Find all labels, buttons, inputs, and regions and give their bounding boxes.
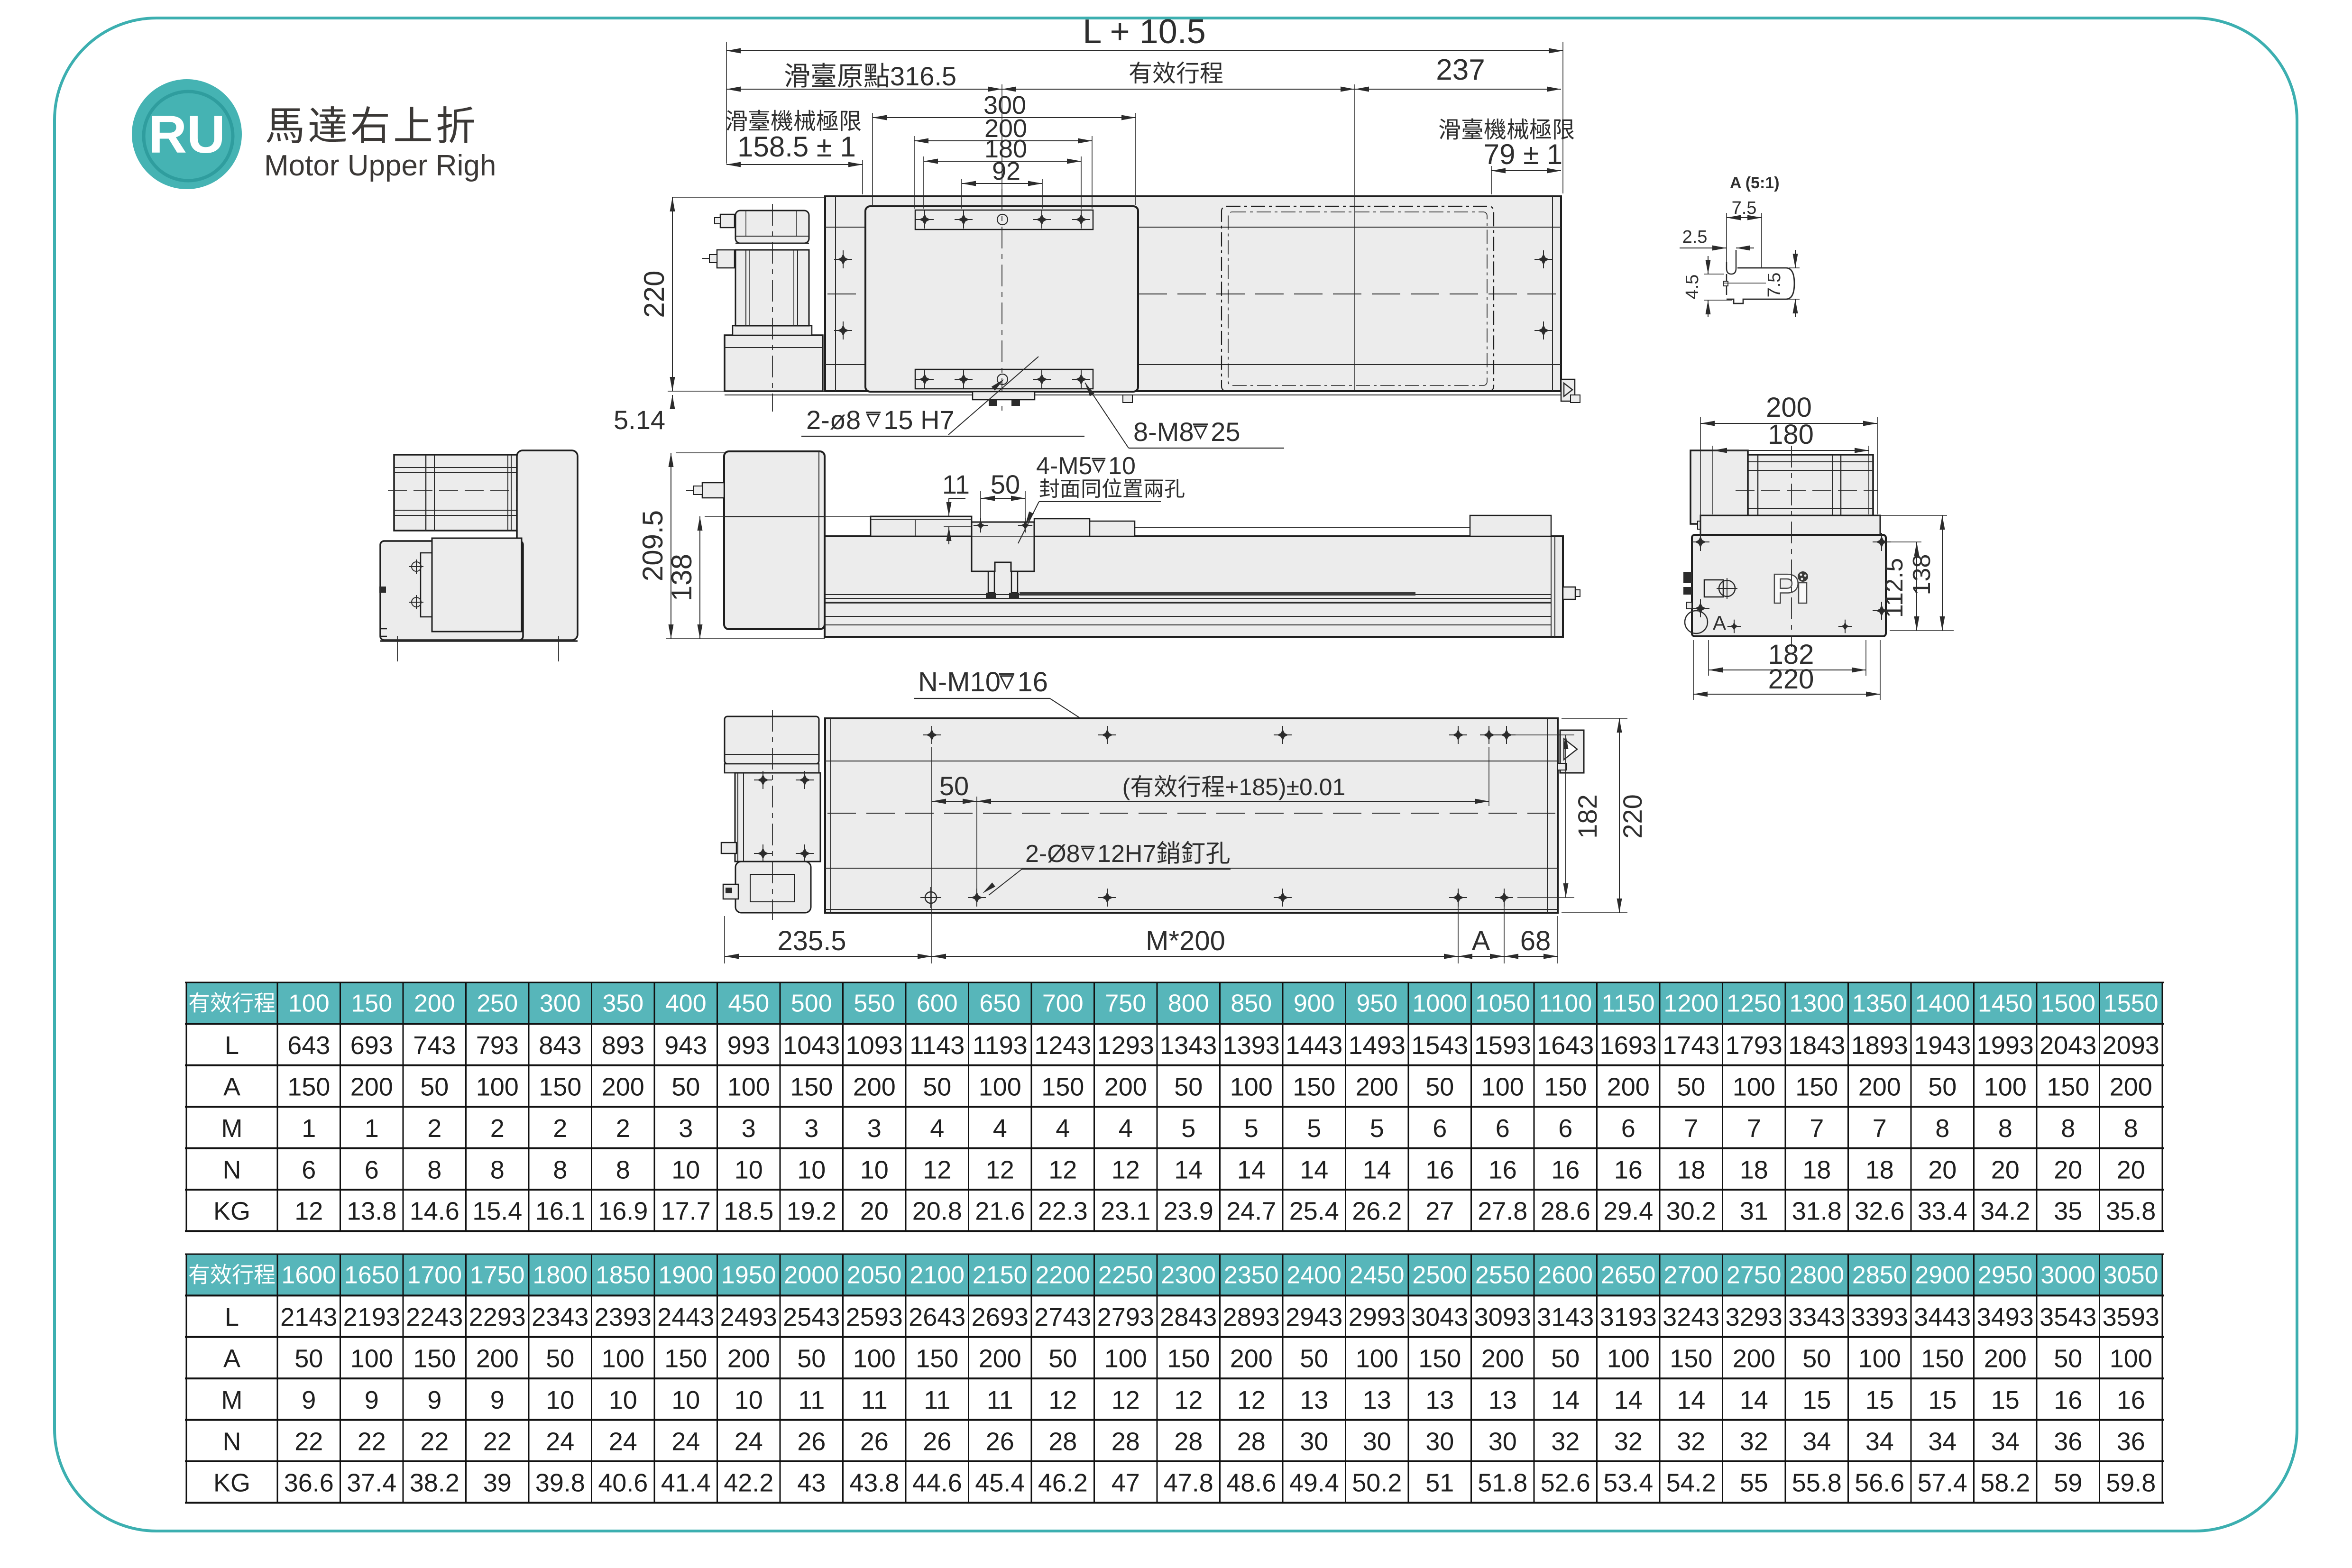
svg-text:34.2: 34.2 [1980,1197,2030,1226]
svg-text:9: 9 [427,1386,441,1414]
svg-text:(有效行程+185)±0.01: (有效行程+185)±0.01 [1122,774,1346,800]
svg-text:100: 100 [1607,1345,1650,1373]
svg-text:300: 300 [540,990,581,1018]
svg-text:1850: 1850 [596,1262,651,1289]
svg-text:1443: 1443 [1286,1031,1342,1060]
svg-text:650: 650 [979,990,1020,1018]
svg-text:209.5: 209.5 [637,510,669,581]
svg-text:28: 28 [1174,1427,1203,1456]
svg-text:3: 3 [804,1114,818,1143]
svg-text:8: 8 [616,1155,630,1184]
svg-text:有效行程: 有效行程 [188,1263,276,1287]
svg-text:18.5: 18.5 [724,1197,773,1226]
svg-text:34: 34 [1928,1427,1957,1456]
svg-text:22: 22 [483,1427,512,1456]
svg-text:47.8: 47.8 [1164,1469,1213,1497]
svg-text:23.1: 23.1 [1101,1197,1150,1226]
svg-text:100: 100 [1984,1073,2027,1101]
svg-text:14: 14 [1677,1386,1705,1414]
svg-text:2543: 2543 [783,1303,840,1331]
svg-text:150: 150 [351,990,392,1018]
svg-text:31.8: 31.8 [1792,1197,1842,1226]
svg-text:2300: 2300 [1161,1262,1216,1289]
svg-text:1993: 1993 [1977,1031,2034,1060]
svg-text:150: 150 [1041,1073,1084,1101]
svg-text:55.8: 55.8 [1792,1469,1842,1497]
svg-text:10: 10 [671,1155,700,1184]
svg-text:46.2: 46.2 [1038,1469,1088,1497]
svg-text:220: 220 [1768,664,1814,695]
svg-text:有效行程: 有效行程 [1129,60,1223,87]
svg-text:2850: 2850 [1852,1262,1907,1289]
svg-text:19.2: 19.2 [787,1197,836,1226]
svg-text:32: 32 [1551,1427,1580,1456]
svg-text:N: N [223,1155,241,1184]
svg-text:3093: 3093 [1474,1303,1531,1331]
svg-text:1143: 1143 [910,1031,965,1060]
svg-text:2493: 2493 [720,1303,777,1331]
svg-text:14: 14 [1614,1386,1643,1414]
svg-text:200: 200 [1984,1345,2027,1373]
svg-text:17.7: 17.7 [661,1197,711,1226]
svg-text:200: 200 [414,990,455,1018]
svg-text:7: 7 [1684,1114,1698,1143]
svg-text:1693: 1693 [1600,1031,1657,1060]
svg-text:10: 10 [735,1155,763,1184]
svg-text:N-M10: N-M10 [918,667,1001,697]
svg-text:843: 843 [539,1031,581,1060]
svg-text:1493: 1493 [1349,1031,1406,1060]
svg-text:150: 150 [1167,1345,1210,1373]
svg-text:2900: 2900 [1915,1262,1970,1289]
svg-text:100: 100 [727,1073,770,1101]
svg-text:2700: 2700 [1663,1262,1718,1289]
svg-text:450: 450 [728,990,769,1018]
svg-text:41.4: 41.4 [661,1469,711,1497]
svg-text:600: 600 [917,990,958,1018]
svg-text:50: 50 [1174,1073,1203,1101]
svg-text:1800: 1800 [533,1262,588,1289]
svg-text:48.6: 48.6 [1226,1469,1276,1497]
svg-text:993: 993 [727,1031,770,1060]
svg-text:50: 50 [923,1073,951,1101]
svg-text:27.8: 27.8 [1478,1197,1527,1226]
svg-text:200: 200 [1230,1345,1273,1373]
svg-text:2550: 2550 [1475,1262,1530,1289]
svg-text:1500: 1500 [2040,990,2095,1018]
svg-text:34: 34 [1991,1427,2020,1456]
svg-text:51: 51 [1425,1469,1454,1497]
svg-text:1393: 1393 [1223,1031,1280,1060]
svg-text:150: 150 [1670,1345,1712,1373]
svg-text:5: 5 [1307,1114,1321,1143]
svg-text:18: 18 [1740,1155,1768,1184]
svg-text:150: 150 [1795,1073,1838,1101]
svg-text:57.4: 57.4 [1918,1469,1967,1497]
svg-text:1550: 1550 [2104,990,2159,1018]
svg-text:1900: 1900 [658,1262,713,1289]
svg-text:12: 12 [1174,1386,1203,1414]
svg-text:4-M5: 4-M5 [1036,452,1092,480]
svg-text:150: 150 [413,1345,456,1373]
svg-text:6: 6 [1496,1114,1510,1143]
svg-text:4.5: 4.5 [1682,275,1702,300]
svg-text:13: 13 [1300,1386,1328,1414]
svg-text:6: 6 [1621,1114,1635,1143]
svg-text:RU: RU [148,105,225,164]
svg-text:2093: 2093 [2103,1031,2159,1060]
svg-text:50: 50 [420,1073,449,1101]
svg-text:8: 8 [553,1155,567,1184]
svg-text:56.6: 56.6 [1855,1469,1904,1497]
svg-text:9: 9 [302,1386,316,1414]
svg-text:1643: 1643 [1537,1031,1594,1060]
svg-text:3: 3 [742,1114,756,1143]
svg-text:22: 22 [294,1427,323,1456]
svg-text:182: 182 [1572,794,1602,838]
svg-text:12: 12 [1048,1155,1077,1184]
svg-text:1950: 1950 [721,1262,776,1289]
svg-text:30: 30 [1488,1427,1517,1456]
svg-text:16: 16 [1018,667,1048,697]
svg-text:5: 5 [1244,1114,1259,1143]
svg-text:11: 11 [987,1386,1013,1414]
svg-text:550: 550 [854,990,895,1018]
svg-text:2800: 2800 [1789,1262,1844,1289]
svg-text:2793: 2793 [1097,1303,1154,1331]
svg-text:2-ø8: 2-ø8 [806,405,861,435]
svg-text:150: 150 [1293,1073,1335,1101]
svg-text:M*200: M*200 [1146,926,1225,956]
svg-text:33.4: 33.4 [1918,1197,1967,1226]
svg-text:2100: 2100 [910,1262,965,1289]
svg-text:743: 743 [413,1031,456,1060]
svg-text:A: A [223,1345,240,1373]
svg-text:16: 16 [1614,1155,1643,1184]
svg-text:6: 6 [1558,1114,1572,1143]
svg-text:N: N [223,1427,241,1456]
svg-text:38.2: 38.2 [410,1469,459,1497]
svg-text:3243: 3243 [1663,1303,1719,1331]
svg-text:55: 55 [1740,1469,1768,1497]
svg-text:150: 150 [1921,1345,1964,1373]
svg-text:893: 893 [602,1031,644,1060]
svg-text:50: 50 [1048,1345,1077,1373]
svg-text:50: 50 [1677,1073,1705,1101]
svg-text:693: 693 [350,1031,393,1060]
svg-text:50: 50 [1802,1345,1831,1373]
svg-text:34: 34 [1802,1427,1831,1456]
svg-text:11: 11 [942,469,970,499]
svg-text:8-M8: 8-M8 [1133,417,1194,447]
svg-text:16: 16 [1551,1155,1580,1184]
svg-text:138: 138 [666,554,698,601]
svg-text:200: 200 [727,1345,770,1373]
svg-text:13.8: 13.8 [347,1197,396,1226]
svg-text:92: 92 [992,157,1020,185]
svg-text:23.9: 23.9 [1164,1197,1213,1226]
svg-text:200: 200 [2110,1073,2152,1101]
svg-text:200: 200 [1356,1073,1398,1101]
svg-text:18: 18 [1677,1155,1705,1184]
svg-text:8: 8 [490,1155,505,1184]
svg-text:馬達右上折: 馬達右上折 [265,104,478,148]
svg-text:1650: 1650 [344,1262,399,1289]
svg-text:50: 50 [294,1345,323,1373]
svg-text:2-Ø8: 2-Ø8 [1025,840,1080,868]
svg-text:750: 750 [1105,990,1146,1018]
svg-text:2743: 2743 [1034,1303,1091,1331]
svg-text:50: 50 [671,1073,700,1101]
svg-text:14: 14 [1740,1386,1768,1414]
svg-text:2: 2 [553,1114,567,1143]
svg-text:1700: 1700 [407,1262,462,1289]
svg-text:1000: 1000 [1412,990,1467,1018]
svg-text:100: 100 [602,1345,644,1373]
svg-text:3543: 3543 [2040,1303,2096,1331]
svg-text:7.5: 7.5 [1732,198,1757,218]
svg-text:100: 100 [1104,1345,1147,1373]
svg-text:5.14: 5.14 [614,405,665,435]
svg-text:50: 50 [1551,1345,1580,1373]
svg-text:2443: 2443 [657,1303,714,1331]
svg-text:1093: 1093 [846,1031,903,1060]
svg-text:A (5:1): A (5:1) [1730,174,1780,192]
svg-text:112.5: 112.5 [1881,558,1908,618]
svg-text:43: 43 [797,1469,826,1497]
svg-text:100: 100 [288,990,330,1018]
svg-text:150: 150 [916,1345,958,1373]
svg-text:2943: 2943 [1286,1303,1342,1331]
svg-text:31: 31 [1740,1197,1768,1226]
svg-text:22: 22 [420,1427,449,1456]
svg-text:15: 15 [1802,1386,1831,1414]
svg-text:12H7銷釘孔: 12H7銷釘孔 [1097,840,1230,868]
svg-text:15: 15 [1928,1386,1957,1414]
svg-text:10: 10 [1108,452,1136,480]
svg-text:3593: 3593 [2103,1303,2159,1331]
svg-text:59: 59 [2054,1469,2082,1497]
svg-text:7: 7 [1873,1114,1887,1143]
svg-text:40.6: 40.6 [598,1469,648,1497]
svg-text:20: 20 [2117,1155,2145,1184]
svg-text:有效行程: 有效行程 [188,991,276,1016]
svg-text:20.8: 20.8 [912,1197,962,1226]
svg-text:100: 100 [1356,1345,1398,1373]
svg-text:58.2: 58.2 [1980,1469,2030,1497]
svg-text:2400: 2400 [1286,1262,1341,1289]
svg-text:3193: 3193 [1600,1303,1657,1331]
svg-text:793: 793 [476,1031,519,1060]
svg-text:24: 24 [671,1427,700,1456]
svg-text:100: 100 [2110,1345,2152,1373]
svg-text:25.4: 25.4 [1289,1197,1339,1226]
svg-text:26: 26 [923,1427,951,1456]
svg-text:21.6: 21.6 [975,1197,1025,1226]
svg-text:350: 350 [602,990,643,1018]
svg-text:36.6: 36.6 [284,1469,334,1497]
svg-text:200: 200 [602,1073,644,1101]
svg-text:30: 30 [1300,1427,1328,1456]
svg-text:235.5: 235.5 [777,926,846,956]
svg-text:26: 26 [986,1427,1014,1456]
svg-text:A: A [1472,926,1490,956]
svg-text:2: 2 [427,1114,441,1143]
svg-text:26: 26 [860,1427,889,1456]
svg-text:29.4: 29.4 [1603,1197,1653,1226]
svg-text:6: 6 [1433,1114,1447,1143]
svg-text:1293: 1293 [1097,1031,1154,1060]
svg-text:100: 100 [476,1073,519,1101]
svg-text:28: 28 [1112,1427,1140,1456]
svg-text:50: 50 [1425,1073,1454,1101]
svg-text:138: 138 [1908,554,1936,596]
svg-text:52.6: 52.6 [1541,1469,1590,1497]
svg-text:2: 2 [616,1114,630,1143]
svg-text:11: 11 [924,1386,950,1414]
svg-text:1593: 1593 [1474,1031,1531,1060]
svg-text:滑臺原點316.5: 滑臺原點316.5 [784,61,956,91]
svg-text:12: 12 [1237,1386,1266,1414]
svg-text:150: 150 [1544,1073,1587,1101]
svg-text:2500: 2500 [1412,1262,1467,1289]
svg-text:50: 50 [939,771,969,801]
svg-text:8: 8 [2124,1114,2138,1143]
svg-text:11: 11 [798,1386,825,1414]
svg-text:1843: 1843 [1788,1031,1845,1060]
svg-text:250: 250 [477,990,518,1018]
svg-text:200: 200 [1607,1073,1650,1101]
svg-text:24.7: 24.7 [1226,1197,1276,1226]
svg-text:59.8: 59.8 [2106,1469,2156,1497]
svg-text:42.2: 42.2 [724,1469,773,1497]
svg-text:1: 1 [365,1114,379,1143]
svg-text:3: 3 [867,1114,882,1143]
svg-text:37.4: 37.4 [347,1469,396,1497]
svg-text:10: 10 [860,1155,889,1184]
svg-text:3143: 3143 [1537,1303,1594,1331]
svg-text:36: 36 [2054,1427,2082,1456]
svg-text:2.5: 2.5 [1682,227,1708,247]
svg-text:500: 500 [791,990,832,1018]
svg-text:39.8: 39.8 [535,1469,585,1497]
svg-text:2200: 2200 [1035,1262,1090,1289]
svg-text:8: 8 [427,1155,441,1184]
svg-text:4: 4 [930,1114,944,1143]
svg-text:2193: 2193 [343,1303,400,1331]
svg-text:50: 50 [2054,1345,2082,1373]
svg-text:14: 14 [1551,1386,1580,1414]
svg-text:L + 10.5: L + 10.5 [1083,13,1206,51]
svg-text:43.8: 43.8 [849,1469,899,1497]
svg-text:8: 8 [1935,1114,1949,1143]
svg-text:100: 100 [1858,1345,1901,1373]
svg-text:16: 16 [1425,1155,1454,1184]
svg-text:24: 24 [546,1427,574,1456]
svg-text:2693: 2693 [972,1303,1029,1331]
svg-text:10: 10 [609,1386,637,1414]
svg-text:28: 28 [1048,1427,1077,1456]
svg-text:3050: 3050 [2104,1262,2159,1289]
svg-text:8: 8 [1998,1114,2012,1143]
svg-text:13: 13 [1363,1386,1391,1414]
svg-text:14: 14 [1300,1155,1328,1184]
svg-text:7: 7 [1810,1114,1824,1143]
svg-text:26: 26 [797,1427,826,1456]
svg-text:A: A [223,1073,240,1101]
svg-text:2243: 2243 [406,1303,463,1331]
svg-text:1043: 1043 [783,1031,840,1060]
svg-text:50: 50 [1928,1073,1957,1101]
svg-text:220: 220 [638,270,670,318]
svg-text:A: A [1713,612,1726,634]
svg-text:30: 30 [1425,1427,1454,1456]
svg-text:Motor Upper Righ: Motor Upper Righ [264,149,496,182]
svg-text:9: 9 [365,1386,379,1414]
svg-text:27: 27 [1425,1197,1454,1226]
svg-text:800: 800 [1168,990,1209,1018]
svg-text:950: 950 [1356,990,1397,1018]
svg-text:158.5 ± 1: 158.5 ± 1 [737,131,856,163]
svg-text:32.6: 32.6 [1855,1197,1904,1226]
svg-text:26.2: 26.2 [1352,1197,1402,1226]
svg-text:14: 14 [1174,1155,1203,1184]
svg-text:1150: 1150 [1602,990,1655,1018]
svg-text:100: 100 [853,1345,896,1373]
svg-text:12: 12 [294,1197,323,1226]
svg-text:100: 100 [1733,1073,1775,1101]
svg-text:13: 13 [1488,1386,1517,1414]
svg-text:16: 16 [2054,1386,2082,1414]
svg-text:2893: 2893 [1223,1303,1280,1331]
svg-text:12: 12 [1112,1155,1140,1184]
svg-text:2450: 2450 [1350,1262,1405,1289]
svg-text:7.5: 7.5 [1764,273,1784,298]
svg-text:L: L [225,1303,239,1331]
svg-text:10: 10 [797,1155,826,1184]
svg-text:1600: 1600 [281,1262,336,1289]
svg-text:1893: 1893 [1851,1031,1908,1060]
svg-text:28: 28 [1237,1427,1266,1456]
svg-text:15.4: 15.4 [472,1197,522,1226]
svg-text:2250: 2250 [1098,1262,1153,1289]
svg-text:L: L [225,1031,239,1060]
svg-text:20: 20 [1991,1155,2020,1184]
svg-text:1300: 1300 [1789,990,1844,1018]
svg-text:2350: 2350 [1224,1262,1279,1289]
svg-text:1193: 1193 [973,1031,1028,1060]
svg-text:900: 900 [1294,990,1335,1018]
svg-text:49.4: 49.4 [1289,1469,1339,1497]
svg-text:200: 200 [1766,392,1812,423]
svg-text:200: 200 [1858,1073,1901,1101]
svg-text:16: 16 [1488,1155,1517,1184]
svg-text:100: 100 [350,1345,393,1373]
svg-text:5: 5 [1370,1114,1384,1143]
svg-text:7: 7 [1747,1114,1761,1143]
svg-text:1243: 1243 [1034,1031,1091,1060]
svg-text:KG: KG [213,1469,250,1497]
svg-text:35.8: 35.8 [2106,1197,2156,1226]
svg-text:50: 50 [991,469,1020,499]
svg-text:100: 100 [1481,1073,1524,1101]
svg-text:25: 25 [1211,417,1240,447]
svg-text:22: 22 [358,1427,386,1456]
svg-text:237: 237 [1436,54,1485,86]
svg-text:200: 200 [1733,1345,1775,1373]
svg-text:150: 150 [287,1073,330,1101]
svg-text:3000: 3000 [2040,1262,2095,1289]
